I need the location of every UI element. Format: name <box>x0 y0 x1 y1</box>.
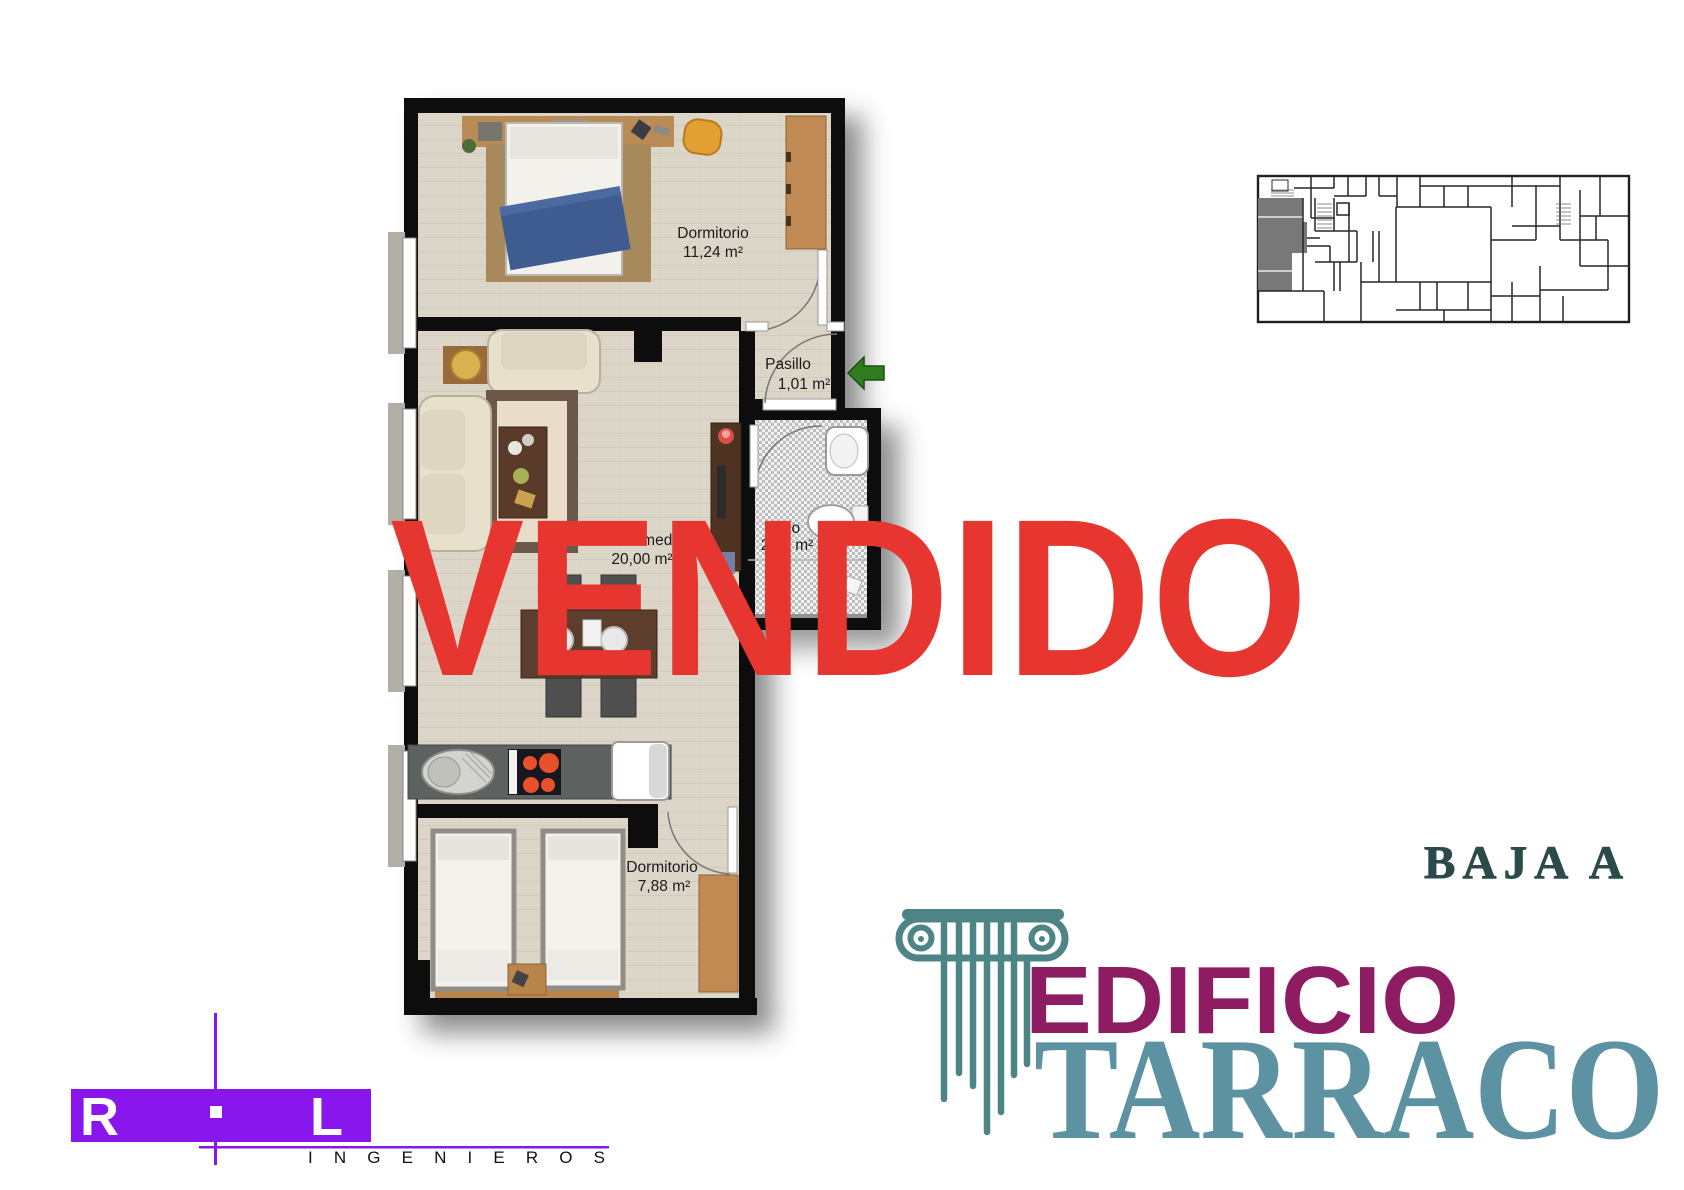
svg-text:Dormitorio: Dormitorio <box>626 859 697 876</box>
svg-text:INGENIEROS: INGENIEROS <box>308 1148 605 1167</box>
svg-text:VENDIDO: VENDIDO <box>390 473 1308 723</box>
svg-text:R: R <box>80 1087 119 1147</box>
svg-text:TARRACO: TARRACO <box>1034 1008 1664 1170</box>
svg-text:11,24 m²: 11,24 m² <box>683 244 743 261</box>
svg-text:Pasillo: Pasillo <box>765 356 811 373</box>
svg-text:Dormitorio: Dormitorio <box>677 225 748 242</box>
svg-text:BAJA A: BAJA A <box>1424 837 1623 889</box>
svg-text:7,88 m²: 7,88 m² <box>638 878 691 895</box>
svg-text:1,01 m²: 1,01 m² <box>778 376 831 393</box>
svg-text:L: L <box>310 1087 343 1147</box>
